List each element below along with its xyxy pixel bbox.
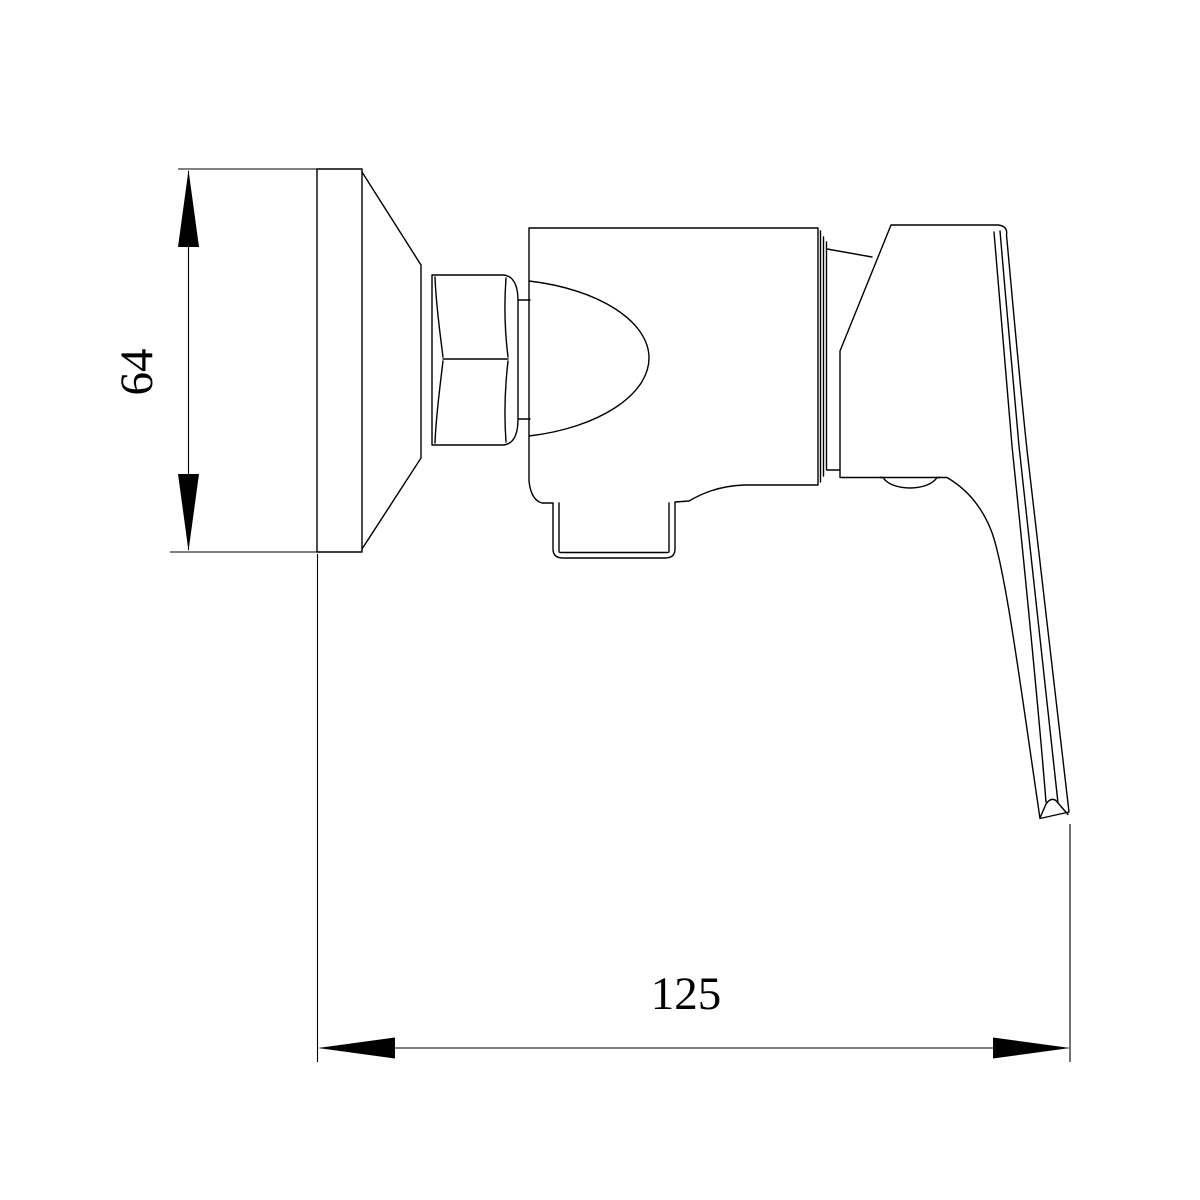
flange-cone [362,172,421,549]
arrowhead-up-icon [178,170,199,247]
technical-drawing-page: 64 125 [0,0,1200,1200]
cartridge-dome [529,281,649,436]
body-outline [529,228,818,558]
handle-ridge-lines [994,231,1058,803]
handle-outline [840,225,1069,819]
valve-body [529,228,818,558]
flange-plate [317,169,362,552]
wall-flange [317,169,421,552]
width-dimension: 125 [318,554,1071,1062]
handle-skirt-lines [827,249,940,478]
handle [827,225,1069,819]
arrowhead-left-icon [318,1038,395,1059]
hex-nut-face-arcs [435,277,508,443]
arrowhead-right-icon [993,1038,1070,1059]
arrowhead-down-icon [178,474,199,551]
outlet-inner-lines [559,503,669,553]
ring-line-3 [827,242,841,470]
width-dimension-label: 125 [651,968,722,1020]
cartridge-rings [821,231,841,482]
hex-nut [432,275,530,445]
height-dimension-label: 64 [111,349,163,396]
nut-neck-lines [518,300,530,419]
height-dimension: 64 [111,169,317,552]
faucet-technical-drawing: 64 125 [0,0,1200,1200]
